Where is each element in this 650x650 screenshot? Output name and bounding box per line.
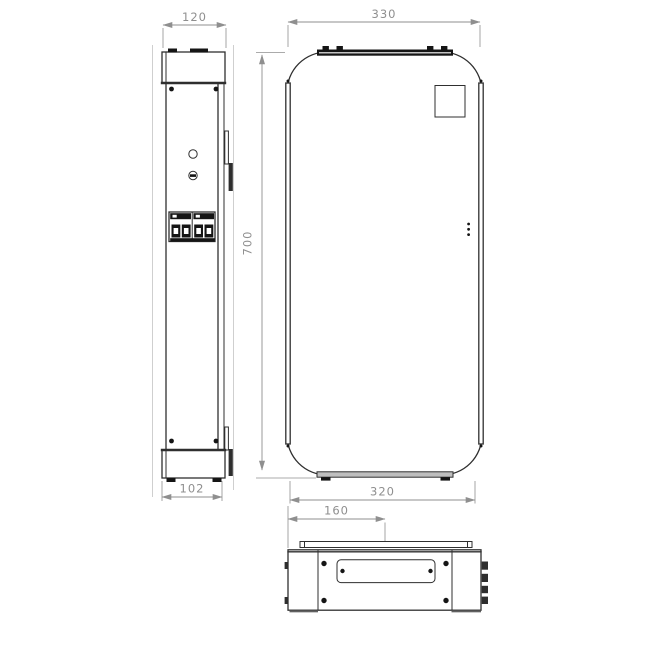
terminal-port [174, 228, 179, 234]
indicator-led [189, 150, 197, 158]
bracket-hook [229, 163, 233, 191]
screw [214, 87, 219, 92]
top-stud [168, 49, 177, 53]
door-window-square [435, 86, 465, 118]
flange-screw [287, 80, 290, 83]
foot [213, 478, 222, 482]
side-flange-right [479, 83, 483, 444]
screw [214, 439, 219, 444]
foot [321, 477, 331, 480]
terminal-port [184, 228, 189, 234]
door-lock-detail [467, 228, 470, 231]
connector-tab [482, 574, 488, 582]
screw [169, 87, 174, 92]
connector-tab [482, 586, 488, 593]
screw [443, 598, 448, 603]
push-button-slot [190, 174, 196, 177]
terminal-port [207, 228, 212, 234]
side-flange-left [286, 83, 290, 444]
flange-screw [480, 80, 483, 83]
dimension-front-height: 700 [241, 53, 317, 478]
breaker-toggle-notch [173, 215, 177, 218]
side-top-cap [162, 52, 225, 83]
connector-tab [285, 597, 288, 604]
door-face-edge [300, 542, 472, 548]
dimension-label: 320 [370, 485, 395, 499]
foot [167, 478, 176, 482]
side-view [153, 45, 234, 497]
screw [321, 561, 326, 566]
wall-bracket-top [225, 131, 233, 191]
top-stud [323, 46, 329, 50]
door-lock-detail [467, 233, 470, 236]
flange-screw [480, 445, 483, 448]
dimension-label: 160 [324, 504, 349, 518]
connector-tab [482, 597, 488, 604]
screw [428, 569, 432, 573]
top-stud [427, 46, 433, 50]
door-lock-detail [467, 223, 470, 226]
dimension-front-bottom-width: 320 [290, 481, 475, 504]
breaker-toggle-notch [196, 215, 200, 218]
dimension-side-bottom-depth: 102 [162, 481, 222, 501]
dimension-front-top-width: 330 [288, 7, 480, 47]
dimension-label: 330 [372, 7, 397, 21]
wall-bracket-bottom [225, 427, 233, 476]
technical-drawing-canvas: 120 102 330 [0, 0, 650, 650]
dimension-label: 700 [241, 231, 255, 256]
top-stud [190, 49, 208, 53]
breaker-base-rail [170, 238, 215, 241]
foot [441, 477, 451, 480]
dimension-label: 120 [182, 10, 207, 24]
dimension-side-top-width: 120 [163, 10, 226, 48]
connector-tab [285, 562, 288, 569]
circuit-breaker-block [169, 212, 215, 242]
connector-tab [482, 562, 488, 570]
side-bottom-cap [162, 450, 225, 478]
terminal-port [196, 228, 201, 234]
three-view-drawing: 120 102 330 [0, 0, 650, 650]
top-stud [441, 46, 447, 50]
flange-screw [287, 445, 290, 448]
screw [443, 561, 448, 566]
bracket-plate [225, 427, 229, 450]
front-bottom-rail [317, 472, 453, 477]
bottom-view [285, 542, 488, 612]
screw [340, 569, 344, 573]
dimension-label: 102 [180, 482, 205, 496]
bracket-hook [229, 449, 233, 476]
screw [169, 439, 174, 444]
bracket-plate [225, 131, 229, 164]
side-body [166, 83, 218, 450]
top-stud [337, 46, 343, 50]
screw [321, 598, 326, 603]
front-view [286, 46, 483, 481]
front-door-panel [287, 52, 482, 475]
cable-gland-plate [337, 560, 435, 583]
